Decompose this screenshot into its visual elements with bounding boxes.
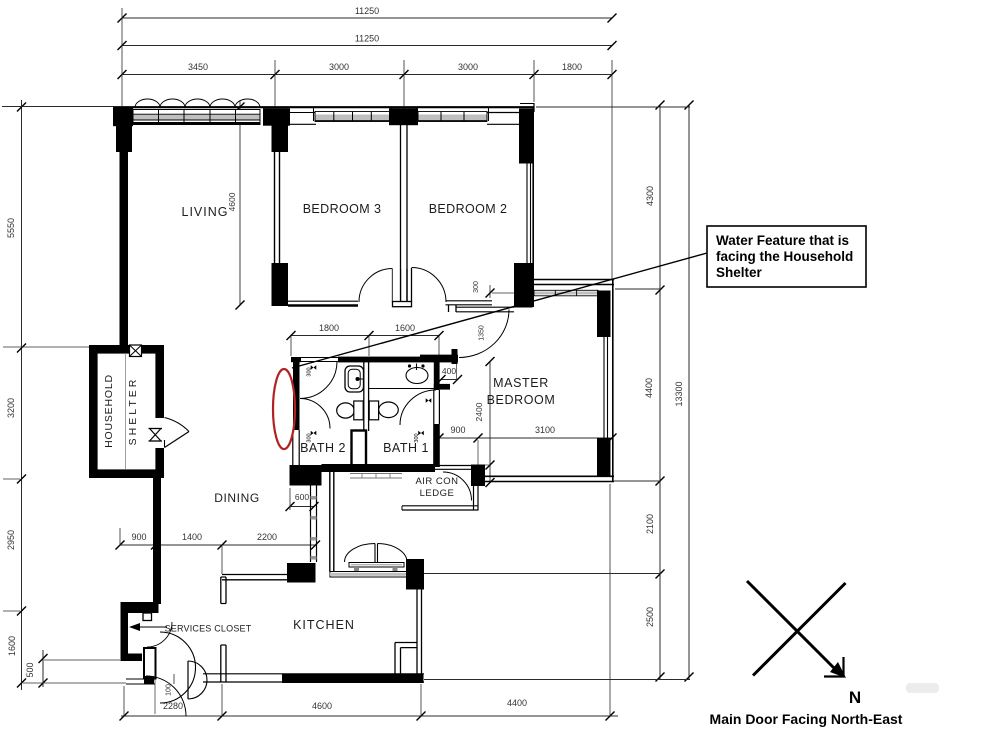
- svg-text:1600: 1600: [395, 323, 415, 333]
- svg-text:LEDGE: LEDGE: [420, 488, 455, 499]
- svg-text:Shelter: Shelter: [716, 265, 763, 280]
- svg-text:facing the Household: facing the Household: [716, 249, 853, 264]
- svg-text:2950: 2950: [6, 530, 16, 550]
- svg-text:LIVING: LIVING: [182, 205, 229, 219]
- svg-text:BATH 1: BATH 1: [383, 441, 429, 455]
- svg-text:1350: 1350: [479, 325, 486, 341]
- svg-text:N: N: [849, 688, 861, 707]
- svg-text:1400: 1400: [182, 532, 202, 542]
- svg-text:3100: 3100: [535, 425, 555, 435]
- svg-text:MASTER: MASTER: [493, 376, 549, 390]
- svg-text:13300: 13300: [674, 381, 684, 406]
- svg-text:900: 900: [131, 532, 146, 542]
- svg-text:900: 900: [450, 425, 465, 435]
- svg-text:DINING: DINING: [214, 491, 260, 505]
- svg-text:300: 300: [473, 281, 480, 293]
- svg-text:AIR CON: AIR CON: [415, 476, 458, 487]
- svg-text:BATH 2: BATH 2: [300, 441, 346, 455]
- svg-text:500: 500: [25, 662, 35, 677]
- svg-text:11250: 11250: [355, 6, 379, 16]
- svg-text:4400: 4400: [507, 698, 527, 708]
- svg-text:BEDROOM: BEDROOM: [487, 393, 556, 407]
- svg-text:2500: 2500: [645, 607, 655, 627]
- svg-text:SERVICES CLOSET: SERVICES CLOSET: [165, 624, 252, 634]
- svg-text:4600: 4600: [312, 701, 332, 711]
- svg-text:BEDROOM 2: BEDROOM 2: [429, 202, 508, 216]
- svg-text:3000: 3000: [329, 62, 349, 72]
- svg-text:11250: 11250: [355, 34, 379, 44]
- svg-text:600: 600: [295, 492, 309, 502]
- svg-text:4400: 4400: [644, 378, 654, 398]
- svg-text:3000: 3000: [458, 62, 478, 72]
- svg-text:400: 400: [442, 366, 456, 376]
- svg-text:2400: 2400: [474, 402, 484, 421]
- svg-text:2100: 2100: [645, 514, 655, 534]
- svg-text:3200: 3200: [6, 398, 16, 418]
- svg-text:300: 300: [307, 367, 313, 376]
- svg-text:1800: 1800: [562, 62, 582, 72]
- svg-text:1600: 1600: [7, 636, 17, 656]
- svg-text:HOUSEHOLD: HOUSEHOLD: [103, 374, 115, 448]
- svg-text:Main Door Facing North-East: Main Door Facing North-East: [710, 711, 903, 727]
- svg-text:1800: 1800: [319, 323, 339, 333]
- svg-text:3450: 3450: [188, 62, 208, 72]
- svg-text:2200: 2200: [257, 532, 277, 542]
- svg-text:100: 100: [166, 684, 173, 696]
- svg-text:5550: 5550: [6, 218, 16, 238]
- svg-text:KITCHEN: KITCHEN: [293, 618, 355, 632]
- svg-text:BEDROOM 3: BEDROOM 3: [303, 202, 382, 216]
- svg-text:4600: 4600: [227, 192, 237, 211]
- svg-text:4300: 4300: [645, 186, 655, 206]
- svg-text:SHELTER: SHELTER: [127, 377, 139, 446]
- svg-text:Water Feature that is: Water Feature that is: [716, 233, 849, 248]
